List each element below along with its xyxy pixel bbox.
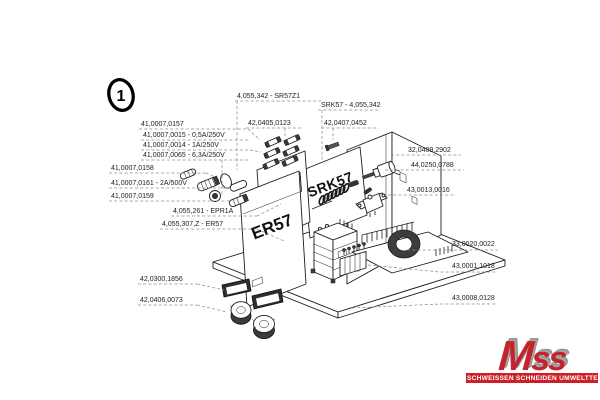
part-label: 42,0407,0452 (324, 120, 367, 127)
knobs (230, 302, 275, 339)
part-label: 4,055,261 - EPR1A (173, 208, 234, 215)
leader-line (197, 284, 224, 290)
leader-line (197, 305, 227, 312)
part-label: 41,0007,0158 (111, 165, 154, 172)
screw (325, 141, 340, 151)
part-label: 43,0013,0016 (407, 187, 450, 194)
part-label: 42,0405,0123 (248, 120, 291, 127)
part-label: 41,0007,0065 - 6,3A/250V (143, 152, 225, 159)
part-label: 41,0007,0015 - 0,5A/250V (143, 132, 225, 139)
leader-line (250, 150, 261, 152)
part-label: 41,0007,0014 - 1A/250V (143, 142, 219, 149)
part-label: 4,055,342 - SR57Z1 (237, 93, 300, 100)
logo: Mss SCHWEISSEN SCHNEIDEN UMWELTTECHNIK (466, 339, 598, 383)
part-label: 42,0300,1856 (140, 276, 183, 283)
part-label: 41,0007,0157 (141, 121, 184, 128)
leader-line (248, 129, 260, 140)
part-label: 4,055,307,Z - ER57 (162, 221, 223, 228)
part-label: 33,0020,0022 (452, 241, 495, 248)
part-label: 41,0007,0159 (111, 193, 154, 200)
part-label: 41,0007,0161 - 2A/500V (111, 180, 187, 187)
part-label: 32,0409,2902 (408, 147, 451, 154)
part-label: 43,0008,0128 (452, 295, 495, 302)
part-label: SRK57 - 4,055,342 (321, 102, 381, 109)
part-label: 44,0250,0788 (411, 162, 454, 169)
figure-callout-number: 1 (117, 88, 126, 105)
figure-callout: 1 (106, 77, 137, 113)
leader-line (206, 173, 215, 177)
part-label: 42,0406,0073 (140, 297, 183, 304)
parts-diagram-page: SRK57 EPR1A ER57 (0, 0, 600, 400)
part-label: 43,0001,1018 (452, 263, 495, 270)
logo-brand-text: Mss (465, 339, 600, 376)
